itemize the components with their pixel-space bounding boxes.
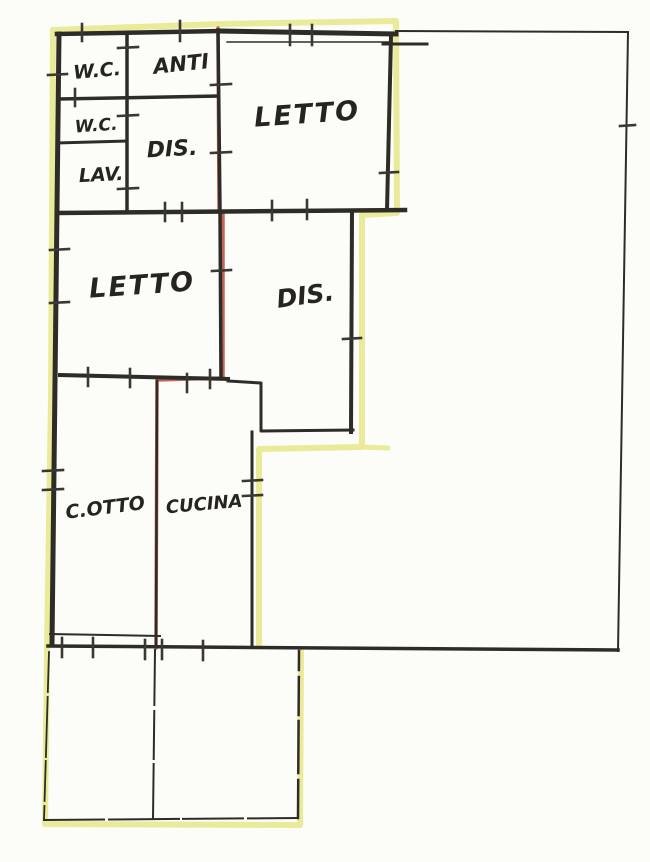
door-window-tick (211, 152, 231, 153)
room-label-wc2: W.C. (74, 115, 118, 138)
door-window-tick (211, 84, 231, 85)
wall-cotto-cucina-divider (156, 381, 157, 647)
wall-extension-right (298, 651, 299, 818)
door-window-tick (212, 270, 231, 271)
floor-plan-drawing: W.C. ANTI W.C. DIS. LAV. LETTO LETTO DIS… (0, 0, 650, 862)
door-window-tick (50, 249, 69, 250)
door-window-tick (118, 188, 138, 189)
door-window-tick (620, 125, 635, 126)
wall-dis-mid-right (351, 213, 352, 432)
room-label-dis-top: DIS. (146, 136, 198, 164)
door-window-tick (48, 74, 67, 75)
door-window-tick (243, 495, 262, 496)
wall-wc2-lav-divider (57, 141, 126, 143)
room-label-wc1: W.C. (72, 58, 121, 84)
door-window-tick (243, 480, 262, 481)
floor-plan-scan: W.C. ANTI W.C. DIS. LAV. LETTO LETTO DIS… (0, 0, 650, 862)
door-window-tick (380, 172, 398, 173)
door-window-tick (343, 338, 361, 339)
highlight-yellow-overshoot (362, 447, 388, 448)
door-window-tick (43, 470, 63, 471)
door-window-tick (43, 489, 63, 490)
room-label-lav: LAV. (78, 163, 124, 187)
wall-top-right-thin (396, 31, 628, 32)
wall-top-letto (220, 31, 396, 34)
door-window-tick (118, 115, 138, 116)
door-window-tick (50, 302, 69, 303)
door-window-tick (118, 47, 138, 48)
